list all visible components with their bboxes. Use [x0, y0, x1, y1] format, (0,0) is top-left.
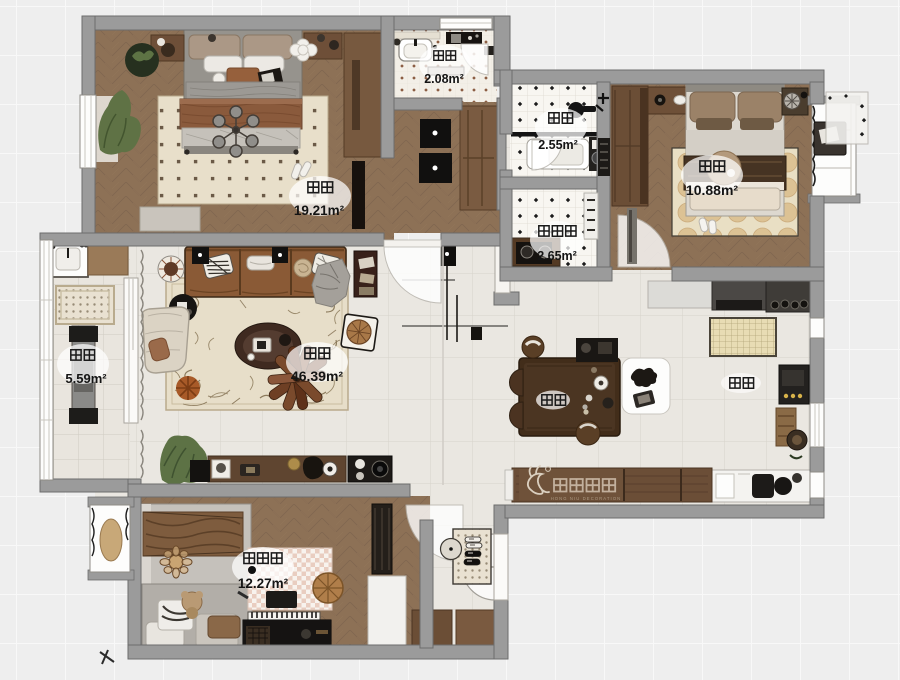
svg-text:2.55m²: 2.55m²	[538, 138, 578, 152]
svg-text:46.39m²: 46.39m²	[291, 368, 343, 384]
svg-text:5.59m²: 5.59m²	[65, 371, 107, 386]
svg-text:HONG NIU DECORATION: HONG NIU DECORATION	[551, 496, 622, 501]
svg-text:2.65m²: 2.65m²	[537, 249, 577, 263]
svg-text:19.21m²: 19.21m²	[294, 203, 345, 218]
svg-text:10.88m²: 10.88m²	[686, 182, 738, 198]
svg-text:12.27m²: 12.27m²	[238, 576, 289, 591]
svg-text:2.08m²: 2.08m²	[424, 72, 464, 86]
